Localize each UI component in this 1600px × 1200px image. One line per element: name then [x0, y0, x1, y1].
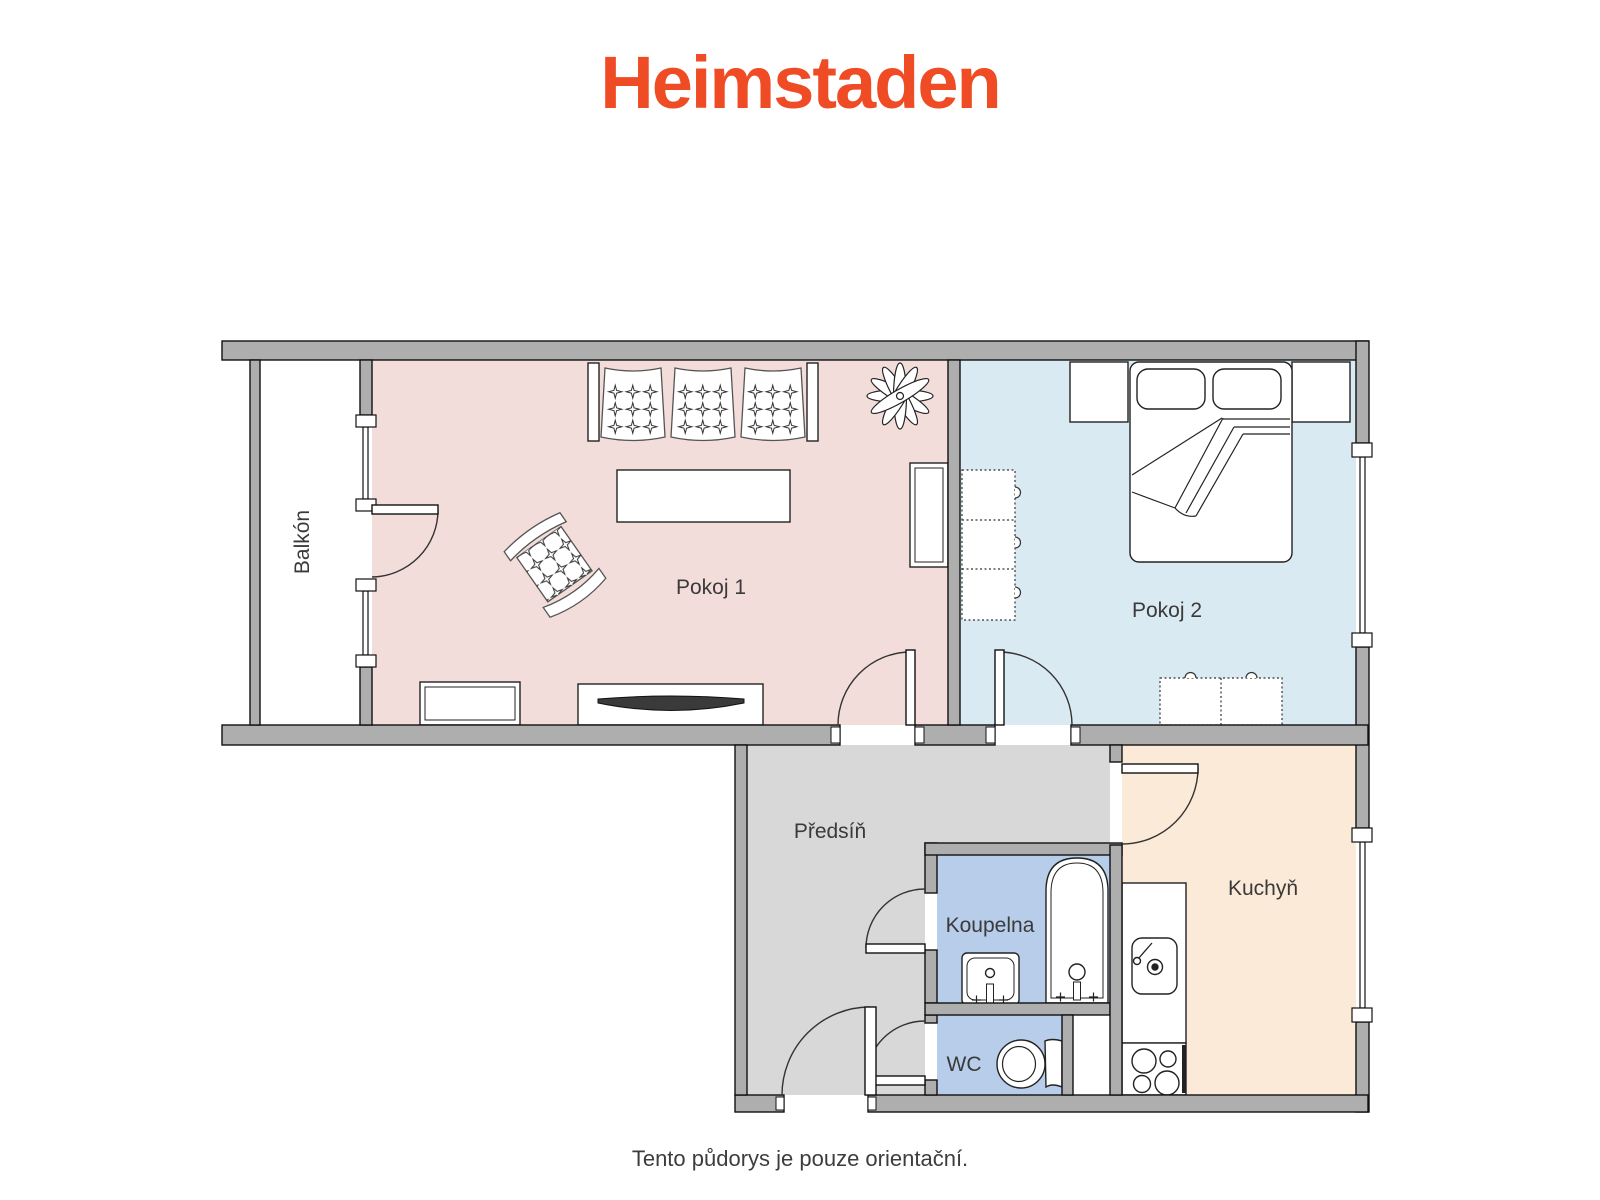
door-threshold: [925, 1021, 937, 1080]
window-sill: [1352, 1008, 1372, 1022]
window-sill: [356, 655, 376, 667]
room-label-pokoj1: Pokoj 1: [676, 576, 746, 599]
room-label-balkon: Balkón: [291, 510, 314, 574]
bathtub-icon: [1046, 858, 1108, 1003]
window-sill: [356, 579, 376, 591]
wall-wc-shaft: [1062, 1015, 1073, 1095]
door-leaf-kuchyn: [1122, 764, 1198, 773]
door-leaf-entrance: [865, 1007, 876, 1095]
room-label-wc: WC: [947, 1053, 982, 1076]
door-leaf-pokoj1: [906, 650, 915, 725]
wall-top: [222, 341, 1368, 360]
floor-plan: Balkón Pokoj 1 Pokoj 2 Předsíň Koupelna …: [0, 0, 1600, 1200]
bathroom-sink-icon: [962, 953, 1019, 1006]
wall-balcony-divider: [360, 667, 372, 725]
nightstand-icon: [1292, 362, 1350, 422]
shaft: [1073, 1015, 1110, 1095]
nightstand-icon: [1070, 362, 1128, 422]
door-leaf-pokoj2: [995, 650, 1004, 725]
wardrobe-icon: [962, 470, 1021, 620]
dresser-icon: [1160, 673, 1282, 726]
wall-koupelna-left: [925, 950, 937, 1003]
wall-middle: [222, 725, 840, 745]
room-label-predsin: Předsíň: [794, 820, 866, 843]
wall-middle: [1071, 725, 1368, 745]
wall-kuchyn: [1110, 845, 1122, 1095]
sofa-icon: [588, 363, 818, 441]
wall-room-divider: [948, 360, 960, 725]
pillow-icon: [1213, 369, 1281, 409]
wall-right: [1356, 341, 1369, 443]
wall-kuchyn: [1110, 745, 1122, 762]
window-sill: [1352, 443, 1372, 457]
room-label-kuchyn: Kuchyň: [1228, 877, 1298, 900]
wall-hall-left: [735, 745, 747, 1095]
window-sill: [1352, 633, 1372, 647]
door-leaf-balcony: [372, 505, 438, 514]
kitchen-counter-icon: [1122, 883, 1186, 1043]
door-leaf-koupelna: [866, 944, 925, 953]
toilet-icon: [997, 1040, 1062, 1089]
bed-icon: [1130, 362, 1292, 562]
room-label-pokoj2: Pokoj 2: [1132, 599, 1202, 622]
room-label-koupelna: Koupelna: [946, 914, 1035, 937]
dresser-icon: [420, 682, 520, 725]
window-sill: [1352, 828, 1372, 842]
wall-balcony-divider: [360, 360, 372, 415]
wall-bottom: [868, 1095, 1368, 1112]
wall-koupelna-wc: [925, 1003, 1110, 1015]
wall-wc-left: [925, 1015, 937, 1023]
table-icon: [617, 470, 790, 522]
wall-wc-left: [925, 1080, 937, 1095]
disclaimer-text: Tento půdorys je pouze orientační.: [632, 1146, 968, 1172]
wall-balcony-left: [250, 360, 260, 725]
stove-icon: [1122, 1043, 1186, 1095]
cabinet-icon: [910, 463, 948, 567]
window-sill: [356, 415, 376, 427]
wall-middle: [915, 725, 995, 745]
door-threshold: [925, 889, 937, 950]
wall-koupelna-top: [925, 843, 1122, 855]
tv-stand-icon: [578, 684, 763, 725]
pillow-icon: [1137, 369, 1205, 409]
